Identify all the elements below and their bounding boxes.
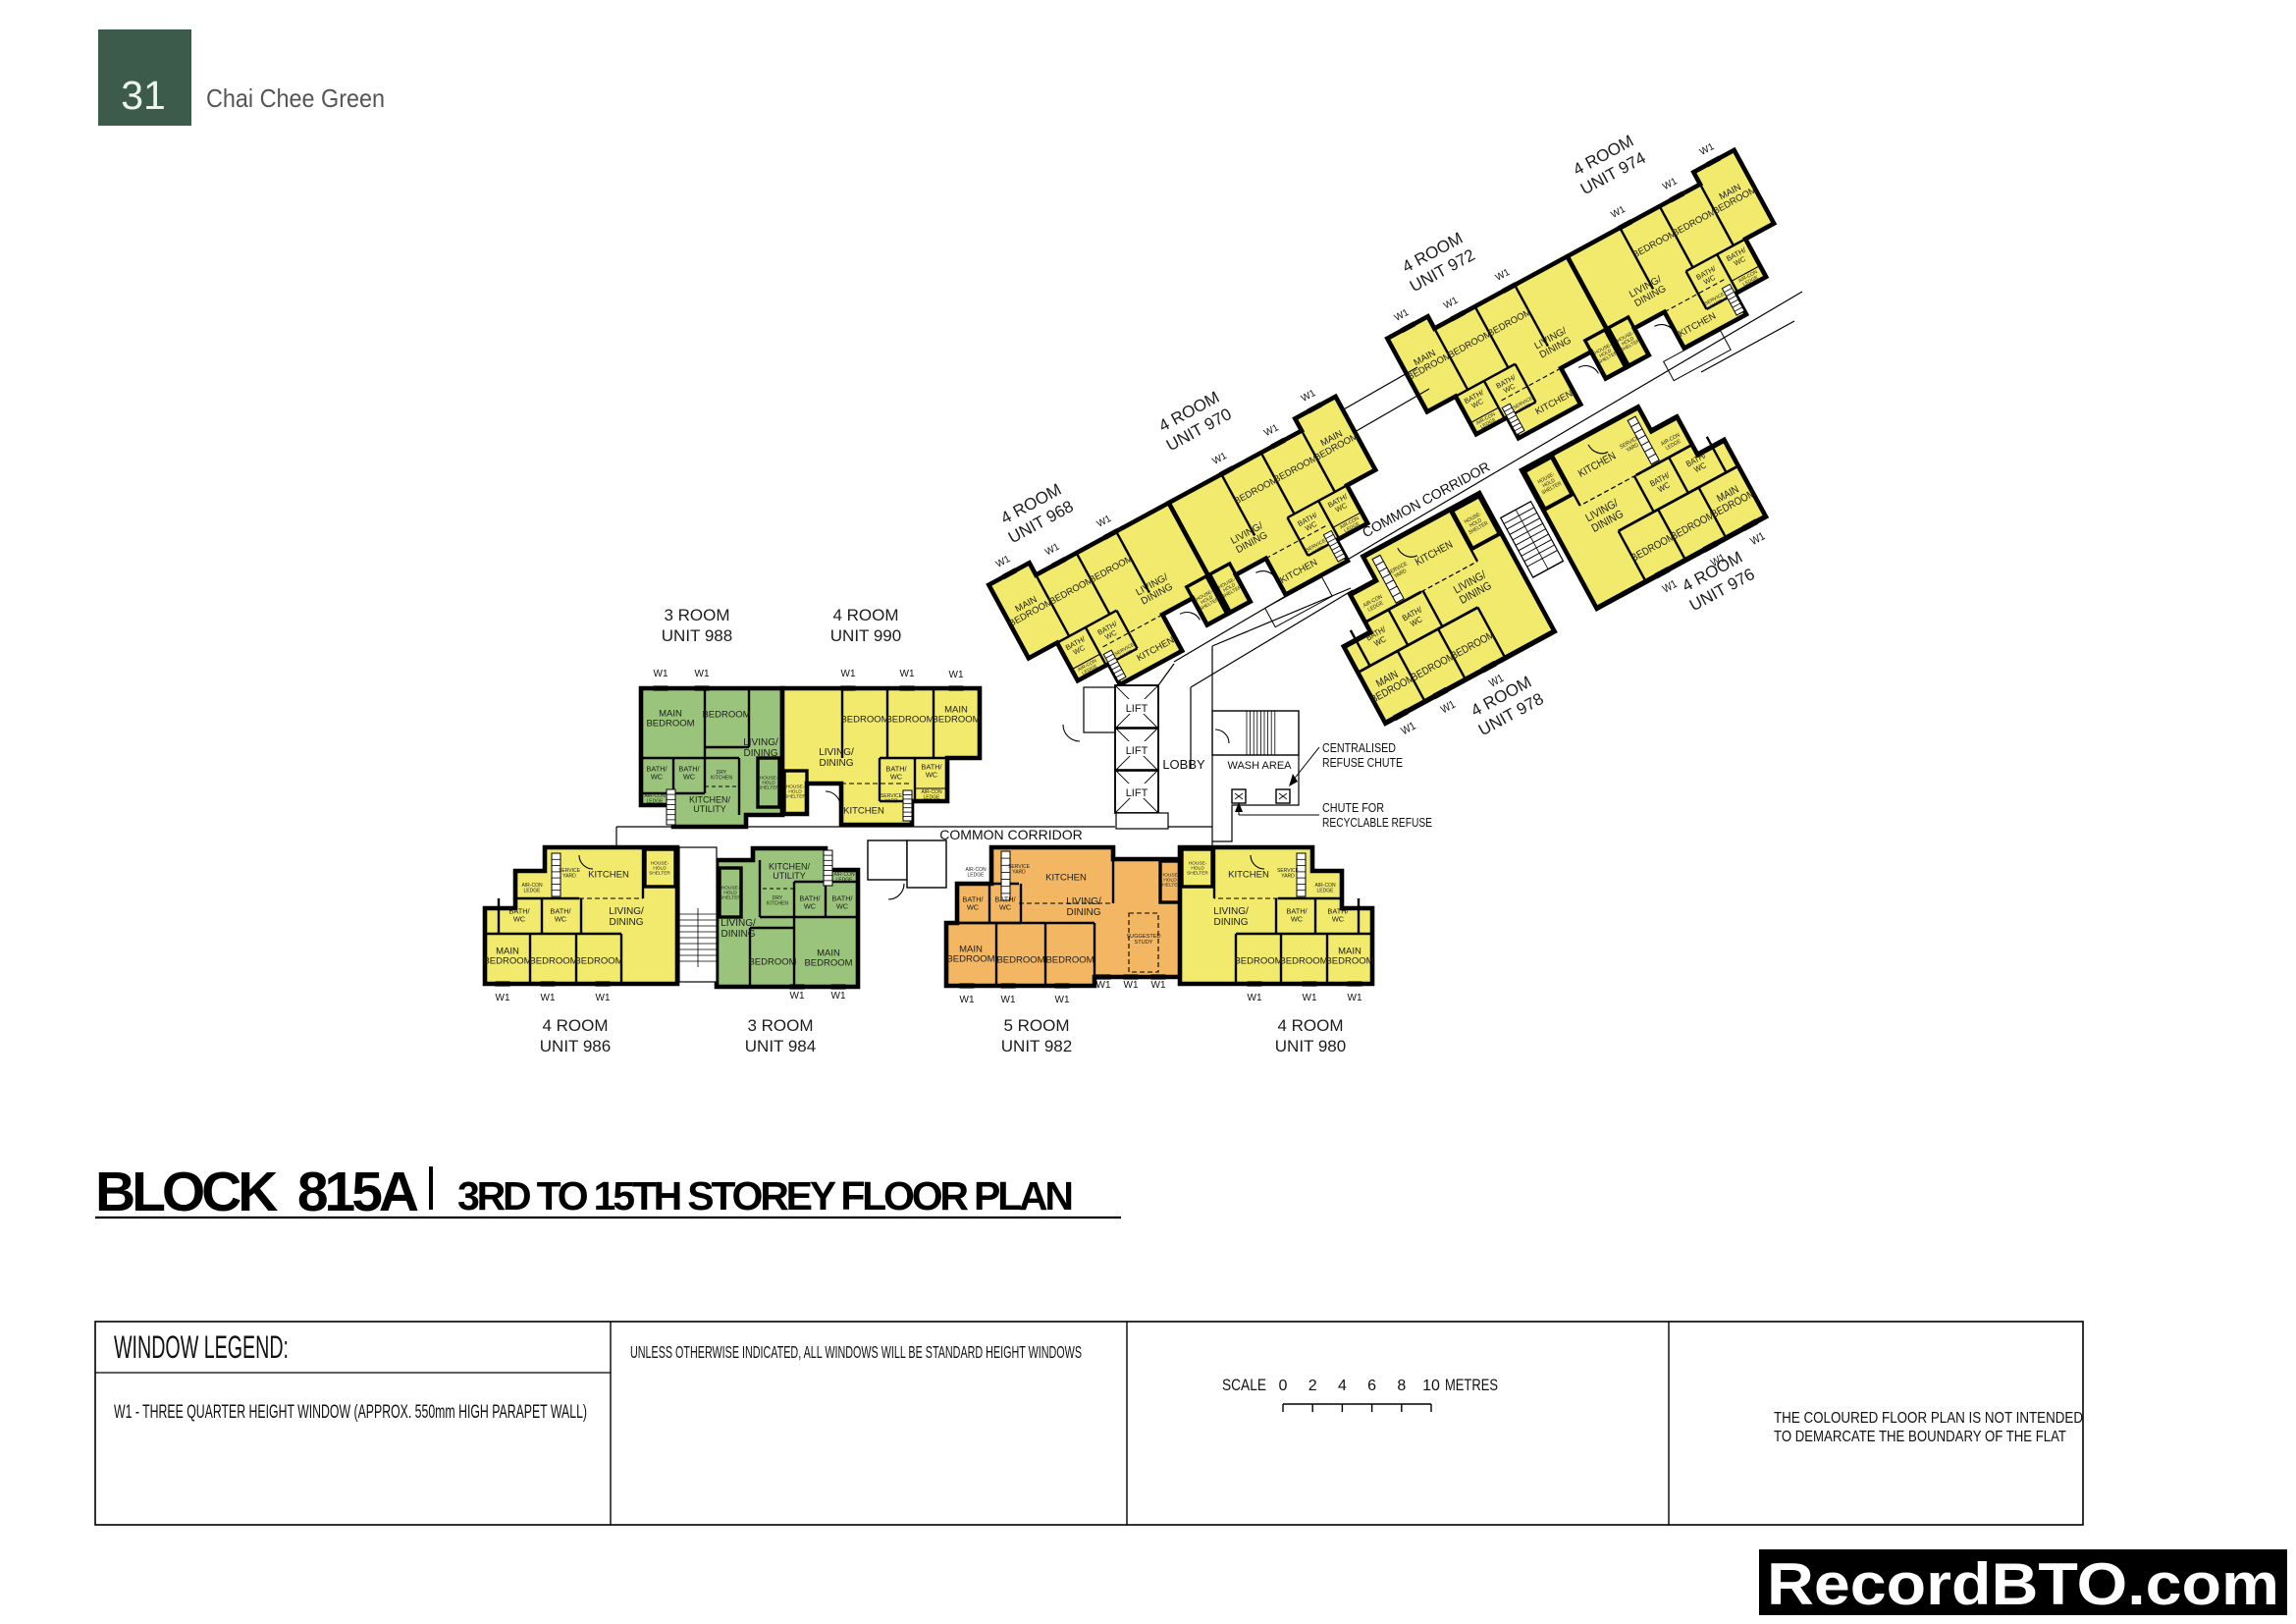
svg-text:SHELTER: SHELTER <box>784 794 806 800</box>
svg-text:KITCHEN/: KITCHEN/ <box>769 861 811 871</box>
svg-text:KITCHEN: KITCHEN <box>711 775 732 781</box>
svg-text:W1: W1 <box>654 669 668 679</box>
svg-text:THE COLOURED FLOOR PLAN IS NOT: THE COLOURED FLOOR PLAN IS NOT INTENDED <box>1774 1410 2083 1427</box>
svg-text:UNLESS OTHERWISE INDICATED, A: UNLESS OTHERWISE INDICATED, ALL WINDOWS … <box>630 1342 1082 1362</box>
svg-text:DINING: DINING <box>721 929 756 940</box>
svg-text:BEDROOM: BEDROOM <box>840 714 888 725</box>
svg-text:LEDGE: LEDGE <box>836 877 854 883</box>
svg-text:W1: W1 <box>541 993 556 1003</box>
svg-text:HOUSE-: HOUSE- <box>786 785 805 790</box>
svg-text:SHELTER: SHELTER <box>758 785 779 791</box>
svg-text:LIFT: LIFT <box>1126 745 1148 757</box>
svg-text:3 ROOM: 3 ROOM <box>747 1016 813 1035</box>
svg-text:KITCHEN: KITCHEN <box>588 869 629 880</box>
svg-text:BEDROOM: BEDROOM <box>996 954 1044 965</box>
svg-text:WC: WC <box>890 773 903 782</box>
svg-text:W1: W1 <box>949 670 964 680</box>
svg-text:SCALE: SCALE <box>1222 1376 1266 1394</box>
svg-text:UNIT 982: UNIT 982 <box>1001 1037 1072 1056</box>
svg-text:DINING: DINING <box>1067 907 1101 918</box>
svg-text:LIVING/: LIVING/ <box>1066 896 1101 907</box>
svg-text:BEDROOM: BEDROOM <box>646 718 694 729</box>
svg-text:2: 2 <box>1308 1378 1317 1394</box>
svg-text:WINDOW LEGEND:: WINDOW LEGEND: <box>114 1329 289 1365</box>
svg-text:WC: WC <box>1332 915 1345 924</box>
svg-text:KITCHEN: KITCHEN <box>1045 872 1087 883</box>
svg-text:SHELTER: SHELTER <box>720 895 741 901</box>
svg-text:BEDROOM: BEDROOM <box>529 955 577 966</box>
svg-text:COMMON CORRIDOR: COMMON CORRIDOR <box>939 827 1082 842</box>
svg-text:Chai Chee Green: Chai Chee Green <box>206 83 385 113</box>
svg-text:3 ROOM: 3 ROOM <box>664 606 729 624</box>
svg-text:W1: W1 <box>1055 995 1070 1005</box>
svg-text:4 ROOM: 4 ROOM <box>832 606 898 624</box>
svg-text:HOUSE-: HOUSE- <box>1161 873 1180 879</box>
svg-text:WC: WC <box>683 773 696 782</box>
svg-text:BEDROOM: BEDROOM <box>1279 955 1327 966</box>
svg-text:YARD: YARD <box>1281 873 1295 879</box>
svg-text:YARD: YARD <box>562 873 576 879</box>
svg-text:BLOCK 815A: BLOCK 815A <box>95 1161 419 1223</box>
svg-text:W1: W1 <box>831 991 846 1001</box>
svg-text:BEDROOM: BEDROOM <box>804 957 852 968</box>
svg-text:BEDROOM: BEDROOM <box>946 953 994 964</box>
svg-text:YARD: YARD <box>1012 869 1026 875</box>
svg-text:WC: WC <box>1291 915 1304 924</box>
svg-text:KITCHEN: KITCHEN <box>767 900 788 906</box>
svg-text:5 ROOM: 5 ROOM <box>1003 1016 1069 1035</box>
svg-text:BEDROOM: BEDROOM <box>1045 954 1094 965</box>
svg-text:HOUSE-: HOUSE- <box>1189 861 1207 867</box>
svg-text:W1: W1 <box>496 993 510 1003</box>
svg-text:4: 4 <box>1338 1378 1347 1394</box>
svg-text:WC: WC <box>967 903 980 912</box>
svg-text:RecordBTO.com: RecordBTO.com <box>1767 1551 2279 1617</box>
svg-text:LIVING/: LIVING/ <box>819 747 854 758</box>
svg-text:LIFT: LIFT <box>1126 787 1148 799</box>
svg-text:WC: WC <box>651 773 664 782</box>
svg-text:LIVING/: LIVING/ <box>721 918 756 929</box>
svg-text:WC: WC <box>804 902 817 911</box>
svg-text:W1: W1 <box>596 993 611 1003</box>
svg-text:W1: W1 <box>1124 980 1139 991</box>
svg-text:BEDROOM: BEDROOM <box>702 709 750 720</box>
svg-text:W1: W1 <box>1303 993 1317 1003</box>
svg-text:HOUSE-: HOUSE- <box>651 861 669 867</box>
svg-text:WC: WC <box>926 771 938 780</box>
svg-text:UNIT 986: UNIT 986 <box>540 1037 611 1056</box>
svg-text:HOUSE-: HOUSE- <box>721 886 740 892</box>
svg-text:6: 6 <box>1367 1378 1376 1394</box>
svg-text:DINING: DINING <box>610 917 644 928</box>
svg-text:BEDROOM: BEDROOM <box>1325 955 1373 966</box>
svg-text:W1 - THREE QUARTER HEIGHT WIN: W1 - THREE QUARTER HEIGHT WINDOW (APPROX… <box>114 1401 587 1423</box>
svg-text:KITCHEN/: KITCHEN/ <box>689 794 731 804</box>
svg-text:4 ROOM: 4 ROOM <box>542 1016 608 1035</box>
svg-text:W1: W1 <box>790 991 805 1001</box>
svg-text:YARD: YARD <box>884 798 898 804</box>
svg-text:BEDROOM: BEDROOM <box>885 714 934 725</box>
svg-text:UTILITY: UTILITY <box>693 804 726 814</box>
svg-text:8: 8 <box>1397 1378 1406 1394</box>
svg-text:BEDROOM: BEDROOM <box>748 956 796 967</box>
svg-text:LEDGE: LEDGE <box>1317 888 1335 893</box>
svg-text:CENTRALISED: CENTRALISED <box>1322 741 1396 755</box>
svg-text:LEDGE: LEDGE <box>524 888 542 893</box>
svg-text:DINING: DINING <box>1214 917 1249 928</box>
svg-text:METRES: METRES <box>1445 1376 1498 1394</box>
svg-text:LEDGE: LEDGE <box>647 798 665 804</box>
svg-text:UTILITY: UTILITY <box>773 871 806 881</box>
svg-text:CHUTE FOR: CHUTE FOR <box>1322 801 1384 815</box>
svg-text:W1: W1 <box>841 669 856 679</box>
svg-text:SHELTER: SHELTER <box>649 871 670 877</box>
svg-text:W1: W1 <box>1348 993 1362 1003</box>
svg-text:UNIT 990: UNIT 990 <box>830 626 901 645</box>
svg-text:W1: W1 <box>960 995 975 1005</box>
svg-text:BEDROOM: BEDROOM <box>483 955 531 966</box>
svg-text:LIFT: LIFT <box>1126 703 1148 715</box>
svg-text:4 ROOM: 4 ROOM <box>1277 1016 1343 1035</box>
svg-text:W1: W1 <box>1001 995 1016 1005</box>
svg-text:DINING: DINING <box>744 748 778 759</box>
svg-text:HOUSE-: HOUSE- <box>760 776 778 782</box>
svg-text:WC: WC <box>999 903 1012 912</box>
svg-text:WC: WC <box>555 915 567 924</box>
svg-text:REFUSE CHUTE: REFUSE CHUTE <box>1322 756 1403 770</box>
svg-text:KITCHEN: KITCHEN <box>1228 869 1269 880</box>
svg-text:RECYCLABLE REFUSE: RECYCLABLE REFUSE <box>1322 816 1432 830</box>
svg-text:TO DEMARCATE THE BOUNDARY OF T: TO DEMARCATE THE BOUNDARY OF THE FLAT <box>1774 1429 2066 1445</box>
svg-text:W1: W1 <box>1096 980 1111 991</box>
svg-text:W1: W1 <box>900 669 915 679</box>
svg-text:WASH AREA: WASH AREA <box>1228 760 1293 772</box>
svg-text:STUDY: STUDY <box>1135 940 1153 946</box>
svg-text:LIVING/: LIVING/ <box>1213 906 1249 917</box>
svg-text:LIVING/: LIVING/ <box>609 906 644 917</box>
svg-text:WC: WC <box>513 915 526 924</box>
svg-text:31: 31 <box>121 73 166 118</box>
svg-text:LEDGE: LEDGE <box>968 872 986 878</box>
svg-text:W1: W1 <box>695 669 710 679</box>
svg-text:BEDROOM: BEDROOM <box>932 714 980 725</box>
svg-text:KITCHEN: KITCHEN <box>843 805 884 816</box>
svg-text:UNIT 980: UNIT 980 <box>1275 1037 1346 1056</box>
svg-text:BEDROOM: BEDROOM <box>1234 955 1282 966</box>
svg-text:SHELTER: SHELTER <box>1187 871 1208 877</box>
svg-text:LOBBY: LOBBY <box>1162 757 1205 772</box>
svg-text:DINING: DINING <box>820 758 854 769</box>
svg-text:UNIT 988: UNIT 988 <box>662 626 732 645</box>
svg-text:LEDGE: LEDGE <box>924 794 941 800</box>
svg-text:3RD TO 15TH STOREY FLOOR PLAN: 3RD TO 15TH STOREY FLOOR PLAN <box>457 1173 1074 1218</box>
svg-text:WC: WC <box>836 902 849 911</box>
svg-text:0: 0 <box>1279 1378 1288 1394</box>
svg-text:UNIT 984: UNIT 984 <box>745 1037 816 1056</box>
svg-text:LIVING/: LIVING/ <box>743 737 778 748</box>
svg-text:W1: W1 <box>1248 993 1262 1003</box>
svg-text:W1: W1 <box>1151 980 1166 991</box>
svg-text:BEDROOM: BEDROOM <box>574 955 622 966</box>
svg-text:10: 10 <box>1422 1378 1440 1394</box>
